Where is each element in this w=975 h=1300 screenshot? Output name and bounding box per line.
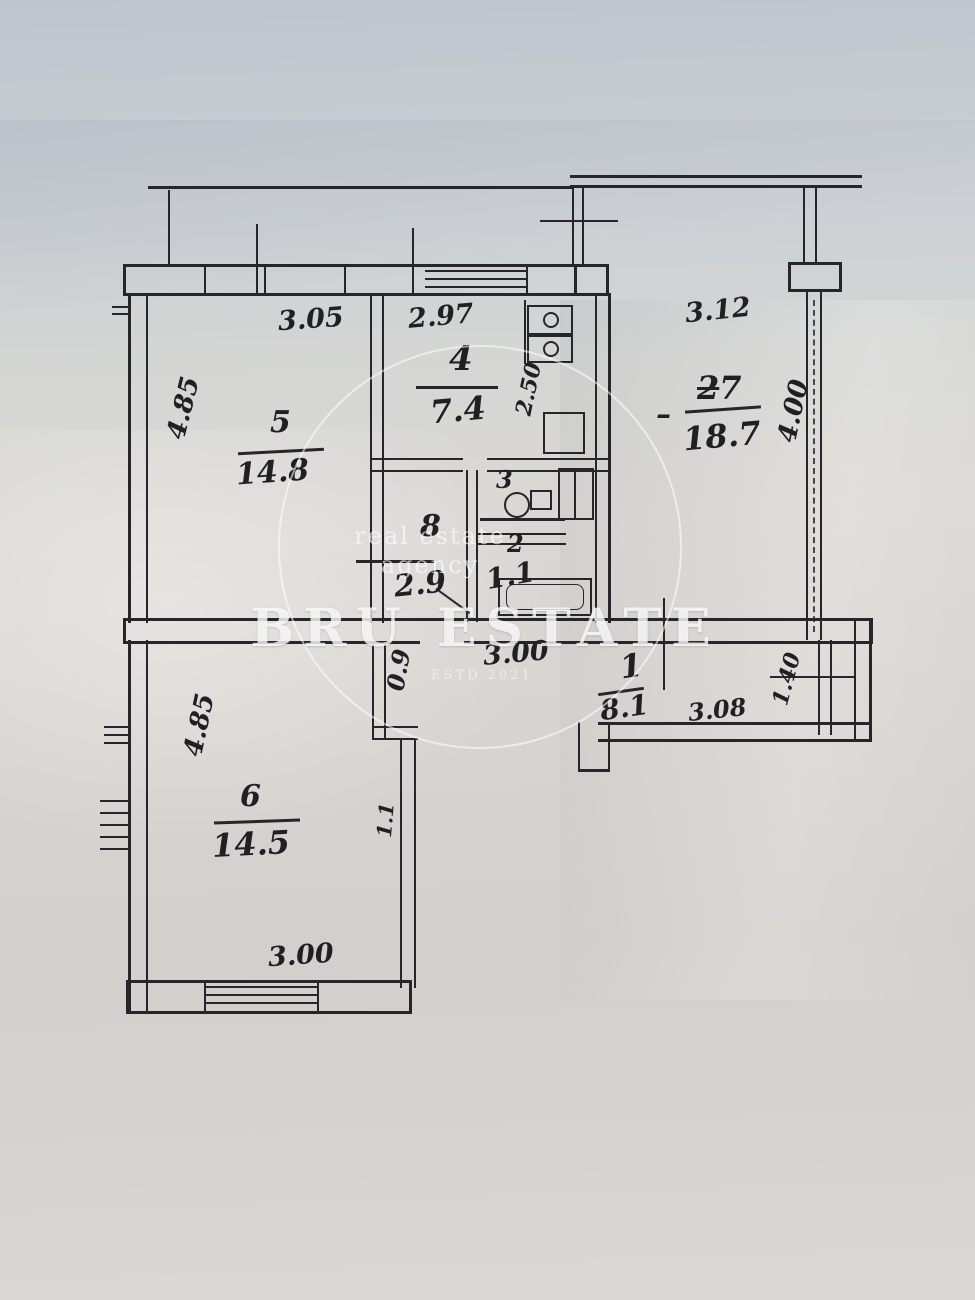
room7-area: 18.7 <box>682 417 762 456</box>
radiator-tick-room6-b4 <box>100 836 128 838</box>
wall-outer-left-room6 <box>128 640 148 1014</box>
wall-band-tick-2 <box>264 264 266 296</box>
wall-outer-left-room5 <box>128 293 148 623</box>
watermark-tagline-2: agency <box>330 551 530 579</box>
radiator-tick-room6-b5 <box>100 848 128 850</box>
wall-top-right <box>570 175 862 188</box>
sink-basin-icon <box>543 312 559 328</box>
dim-top-room7: 3.12 <box>684 294 752 328</box>
room7-number: 27 <box>697 372 742 404</box>
room6-number: 6 <box>240 782 261 812</box>
radiator-tick-room6-a2 <box>104 734 128 736</box>
radiator-tick-room6-a1 <box>104 726 128 728</box>
dim-top-room5: 3.05 <box>277 304 344 336</box>
wall-outer-right-corridor <box>854 618 872 742</box>
wall-band-tick-4 <box>526 264 528 296</box>
scanned-floor-plan-page: { "watermark": { "line1": "real estate",… <box>0 0 975 1300</box>
radiator-tick-room6-b2 <box>100 812 128 814</box>
room7-number-old: 2 <box>697 369 719 407</box>
watermark-estd: ESTD 2021 <box>382 668 582 683</box>
room7-leader-dash: – <box>656 400 671 430</box>
watermark-tagline-1: real estate <box>330 522 530 550</box>
wall-room6-right-lower <box>400 740 416 988</box>
radiator-tick-room5-b <box>112 313 130 315</box>
watermark-brand: BRU ESTATE <box>155 598 815 659</box>
room5-number: 5 <box>270 408 291 438</box>
balcony-post-block <box>788 262 842 292</box>
wall-connector-top <box>572 187 584 267</box>
radiator-tick-room5-a <box>112 306 130 308</box>
dim-bottom-room6: 3.00 <box>267 940 334 972</box>
stove-burner-icon <box>543 341 559 357</box>
wall-band-tick-1 <box>204 264 206 296</box>
window-room6-tick-left <box>204 980 206 1014</box>
wall-corridor-step <box>578 722 610 772</box>
window-room6-tick-right <box>317 980 319 1014</box>
wall-middle-cap-left <box>123 618 126 644</box>
wall-band-tick-5 <box>574 264 577 296</box>
radiator-tick-room6-b1 <box>100 800 128 802</box>
balcony-post-stem <box>803 187 817 264</box>
radiator-tick-room6-b3 <box>100 824 128 826</box>
room6-area: 14.5 <box>211 826 291 862</box>
tick-line-kitchen-top <box>540 220 618 222</box>
balcony-edge-line <box>148 186 572 189</box>
wall-axis-dashed-room7 <box>813 300 815 632</box>
dim-top-room4: 2.97 <box>407 300 475 333</box>
wall-band-tick-3 <box>344 264 346 296</box>
window-room4 <box>425 270 527 290</box>
dim-hall-right: 3.08 <box>687 695 748 725</box>
radiator-tick-room6-a3 <box>104 742 128 744</box>
wall-top-band <box>123 264 609 296</box>
dim-room6-side: 1.1 <box>374 802 397 838</box>
tick-vertical-left <box>168 190 170 267</box>
window-room6 <box>205 986 318 1008</box>
room7-number-new: 7 <box>719 369 741 407</box>
wall-corridor-inner <box>818 640 832 735</box>
